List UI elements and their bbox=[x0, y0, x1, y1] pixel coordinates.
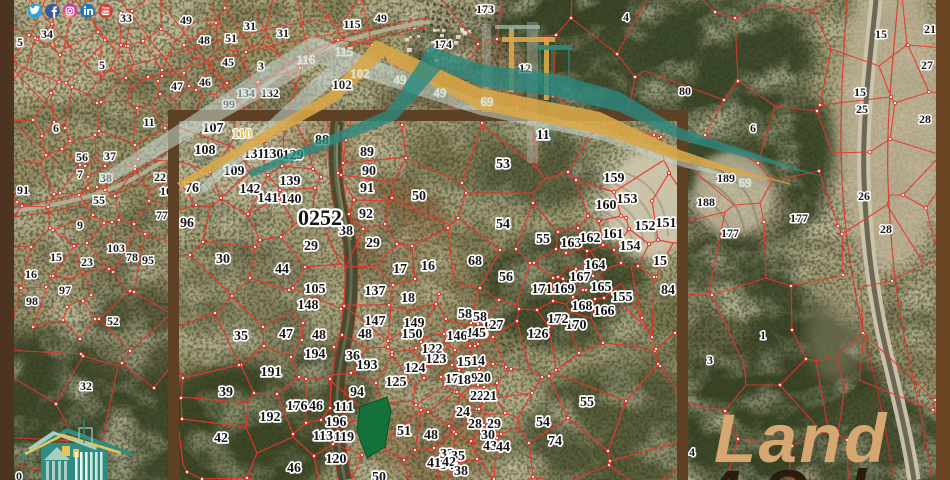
svg-text:164: 164 bbox=[585, 258, 606, 273]
svg-text:153: 153 bbox=[617, 192, 638, 207]
svg-text:91: 91 bbox=[360, 181, 374, 196]
svg-text:110: 110 bbox=[232, 127, 252, 142]
svg-text:123: 123 bbox=[426, 352, 447, 367]
svg-text:119: 119 bbox=[334, 430, 354, 445]
svg-text:105: 105 bbox=[305, 282, 326, 297]
svg-text:191: 191 bbox=[261, 365, 282, 380]
svg-text:166: 166 bbox=[594, 304, 615, 319]
svg-text:38: 38 bbox=[454, 464, 468, 479]
svg-text:6: 6 bbox=[53, 121, 59, 135]
svg-text:111: 111 bbox=[334, 400, 353, 415]
svg-text:9: 9 bbox=[77, 218, 83, 232]
svg-text:49: 49 bbox=[180, 13, 192, 27]
svg-text:124: 124 bbox=[405, 361, 426, 376]
svg-text:96: 96 bbox=[180, 216, 194, 231]
svg-text:102: 102 bbox=[332, 77, 352, 92]
svg-text:152: 152 bbox=[635, 219, 656, 234]
svg-text:80: 80 bbox=[679, 84, 691, 98]
svg-text:150: 150 bbox=[402, 327, 423, 342]
svg-text:177: 177 bbox=[721, 226, 739, 240]
svg-text:30: 30 bbox=[216, 252, 230, 267]
svg-text:95: 95 bbox=[142, 253, 154, 267]
svg-text:155: 155 bbox=[612, 290, 633, 305]
svg-text:172: 172 bbox=[548, 312, 569, 327]
svg-text:27: 27 bbox=[921, 58, 933, 72]
svg-text:94: 94 bbox=[350, 385, 364, 400]
svg-text:49: 49 bbox=[434, 85, 448, 100]
svg-text:3: 3 bbox=[707, 353, 713, 367]
svg-text:7: 7 bbox=[77, 167, 83, 181]
svg-text:193: 193 bbox=[357, 358, 378, 373]
svg-text:78: 78 bbox=[126, 250, 138, 264]
svg-text:56: 56 bbox=[499, 270, 513, 285]
svg-text:0: 0 bbox=[16, 469, 22, 480]
svg-text:165: 165 bbox=[591, 280, 612, 295]
svg-text:15: 15 bbox=[50, 250, 62, 264]
svg-text:159: 159 bbox=[604, 171, 625, 186]
svg-text:177: 177 bbox=[790, 211, 808, 225]
svg-text:14: 14 bbox=[471, 354, 485, 369]
svg-text:21: 21 bbox=[924, 22, 936, 36]
svg-text:74: 74 bbox=[548, 434, 562, 449]
svg-text:47: 47 bbox=[171, 79, 183, 93]
svg-text:33: 33 bbox=[120, 11, 132, 25]
svg-text:16: 16 bbox=[25, 267, 37, 281]
svg-text:15: 15 bbox=[875, 27, 887, 41]
svg-text:58: 58 bbox=[473, 310, 487, 325]
svg-text:5: 5 bbox=[17, 35, 23, 49]
svg-text:44: 44 bbox=[496, 440, 510, 455]
svg-text:29: 29 bbox=[366, 236, 380, 251]
svg-text:37: 37 bbox=[104, 149, 116, 163]
svg-text:148: 148 bbox=[298, 298, 319, 313]
svg-text:46: 46 bbox=[199, 75, 211, 89]
svg-text:11: 11 bbox=[536, 128, 549, 143]
svg-text:188: 188 bbox=[697, 195, 715, 209]
svg-text:46: 46 bbox=[309, 399, 323, 414]
svg-text:31: 31 bbox=[244, 19, 256, 33]
svg-text:163: 163 bbox=[561, 236, 582, 251]
svg-text:45: 45 bbox=[472, 326, 486, 341]
svg-text:160: 160 bbox=[596, 198, 617, 213]
svg-text:115: 115 bbox=[343, 17, 360, 31]
svg-text:192: 192 bbox=[260, 410, 281, 425]
svg-text:173: 173 bbox=[476, 2, 494, 16]
svg-text:90: 90 bbox=[362, 164, 376, 179]
svg-text:49: 49 bbox=[375, 11, 387, 25]
svg-text:52: 52 bbox=[107, 314, 119, 328]
svg-text:4 Sale: 4 Sale bbox=[702, 456, 907, 480]
svg-text:54: 54 bbox=[496, 217, 510, 232]
svg-text:35: 35 bbox=[234, 329, 248, 344]
svg-text:17: 17 bbox=[393, 262, 407, 277]
svg-text:49: 49 bbox=[394, 72, 408, 87]
svg-text:55: 55 bbox=[93, 193, 105, 207]
svg-text:48: 48 bbox=[198, 33, 210, 47]
svg-text:102: 102 bbox=[350, 66, 370, 81]
svg-text:137: 137 bbox=[365, 284, 386, 299]
svg-text:0252: 0252 bbox=[298, 205, 342, 230]
svg-text:48: 48 bbox=[358, 327, 372, 342]
svg-text:15: 15 bbox=[457, 355, 471, 370]
svg-text:194: 194 bbox=[305, 347, 326, 362]
svg-text:48: 48 bbox=[312, 328, 326, 343]
svg-text:176: 176 bbox=[287, 399, 308, 414]
svg-text:108: 108 bbox=[195, 143, 216, 158]
svg-text:22: 22 bbox=[470, 389, 484, 404]
svg-text:53: 53 bbox=[496, 157, 510, 172]
svg-text:4: 4 bbox=[623, 10, 629, 24]
svg-text:26: 26 bbox=[858, 189, 870, 203]
svg-text:168: 168 bbox=[572, 299, 593, 314]
svg-text:120: 120 bbox=[326, 452, 347, 467]
svg-text:15: 15 bbox=[653, 254, 667, 269]
svg-text:34: 34 bbox=[41, 27, 53, 41]
svg-text:25: 25 bbox=[856, 102, 868, 116]
svg-text:41: 41 bbox=[427, 456, 441, 471]
svg-text:18: 18 bbox=[401, 291, 415, 306]
svg-text:58: 58 bbox=[458, 307, 472, 322]
svg-text:22: 22 bbox=[154, 170, 166, 184]
svg-text:4: 4 bbox=[689, 445, 695, 459]
svg-text:46: 46 bbox=[287, 461, 301, 476]
svg-text:154: 154 bbox=[620, 239, 641, 254]
svg-text:23: 23 bbox=[81, 255, 93, 269]
svg-text:146: 146 bbox=[447, 329, 468, 344]
svg-text:45: 45 bbox=[222, 55, 234, 69]
svg-text:51: 51 bbox=[397, 424, 411, 439]
svg-text:39: 39 bbox=[219, 385, 233, 400]
svg-text:21: 21 bbox=[483, 389, 497, 404]
svg-text:32: 32 bbox=[80, 379, 92, 393]
svg-text:29: 29 bbox=[304, 239, 318, 254]
svg-text:43: 43 bbox=[483, 439, 497, 454]
svg-text:55: 55 bbox=[580, 395, 594, 410]
svg-text:196: 196 bbox=[326, 415, 347, 430]
svg-text:50: 50 bbox=[372, 470, 386, 480]
svg-text:51: 51 bbox=[225, 31, 237, 45]
svg-text:115: 115 bbox=[335, 44, 354, 59]
svg-text:97: 97 bbox=[59, 283, 71, 297]
svg-text:28: 28 bbox=[880, 222, 892, 236]
svg-text:126: 126 bbox=[528, 327, 549, 342]
svg-text:162: 162 bbox=[580, 231, 601, 246]
svg-text:28: 28 bbox=[468, 417, 482, 432]
svg-text:31: 31 bbox=[277, 26, 289, 40]
svg-text:103: 103 bbox=[107, 241, 125, 255]
svg-text:55: 55 bbox=[536, 232, 550, 247]
svg-text:69: 69 bbox=[481, 94, 495, 109]
svg-text:141: 141 bbox=[258, 191, 279, 206]
svg-text:48: 48 bbox=[424, 428, 438, 443]
svg-text:116: 116 bbox=[297, 52, 316, 67]
svg-text:113: 113 bbox=[313, 429, 333, 444]
svg-text:89: 89 bbox=[360, 145, 374, 160]
svg-text:15: 15 bbox=[854, 85, 866, 99]
svg-text:6: 6 bbox=[750, 121, 756, 135]
svg-text:151: 151 bbox=[656, 216, 677, 231]
svg-text:125: 125 bbox=[386, 375, 407, 390]
svg-text:You: You bbox=[101, 6, 109, 11]
svg-text:Tube: Tube bbox=[101, 11, 109, 15]
svg-text:91: 91 bbox=[17, 183, 29, 197]
svg-text:11: 11 bbox=[143, 115, 154, 129]
svg-text:5: 5 bbox=[99, 58, 105, 72]
svg-text:56: 56 bbox=[76, 150, 88, 164]
svg-text:18: 18 bbox=[457, 373, 471, 388]
svg-text:44: 44 bbox=[275, 262, 289, 277]
svg-text:77: 77 bbox=[156, 208, 168, 222]
svg-text:84: 84 bbox=[661, 283, 675, 298]
svg-text:42: 42 bbox=[214, 431, 228, 446]
svg-text:68: 68 bbox=[468, 254, 482, 269]
svg-text:47: 47 bbox=[279, 327, 293, 342]
svg-text:92: 92 bbox=[359, 207, 373, 222]
svg-text:170: 170 bbox=[566, 318, 587, 333]
svg-text:16: 16 bbox=[421, 259, 435, 274]
svg-text:20: 20 bbox=[477, 371, 491, 386]
svg-text:1: 1 bbox=[760, 328, 766, 342]
svg-text:98: 98 bbox=[26, 294, 38, 308]
svg-text:69: 69 bbox=[739, 175, 753, 190]
svg-text:139: 139 bbox=[280, 174, 301, 189]
svg-text:54: 54 bbox=[536, 415, 550, 430]
svg-text:28: 28 bbox=[919, 112, 931, 126]
svg-text:50: 50 bbox=[412, 189, 426, 204]
svg-text:171: 171 bbox=[532, 282, 553, 297]
